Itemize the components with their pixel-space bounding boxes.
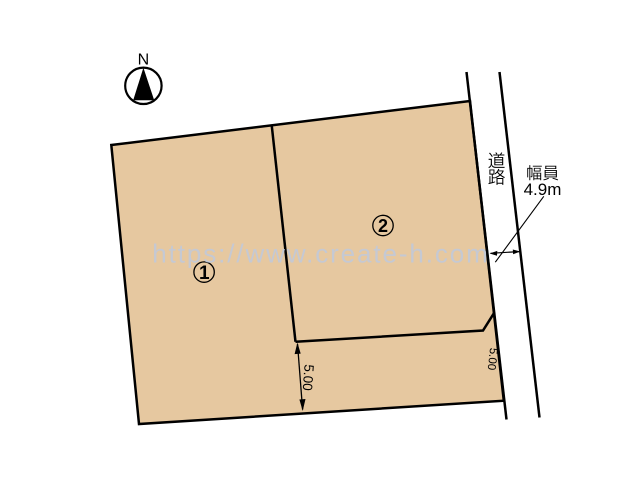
svg-text:2: 2	[378, 216, 388, 236]
svg-text:N: N	[138, 52, 150, 69]
svg-text:https://www.create-h.com: https://www.create-h.com	[152, 239, 489, 269]
svg-text:5.00: 5.00	[300, 364, 317, 391]
svg-text:4.9m: 4.9m	[524, 180, 562, 199]
svg-text:5.00: 5.00	[485, 347, 499, 371]
